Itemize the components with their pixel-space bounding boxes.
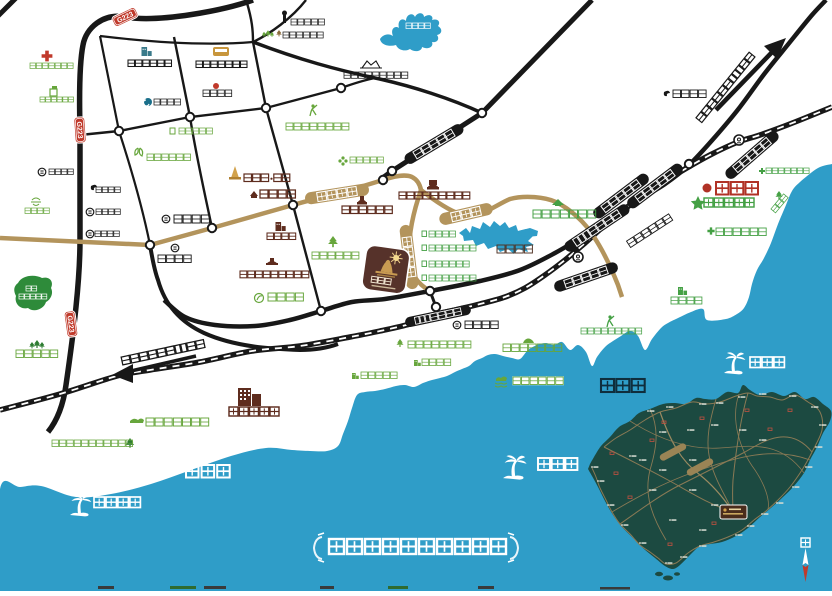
svg-text:G223: G223 [75,121,83,139]
